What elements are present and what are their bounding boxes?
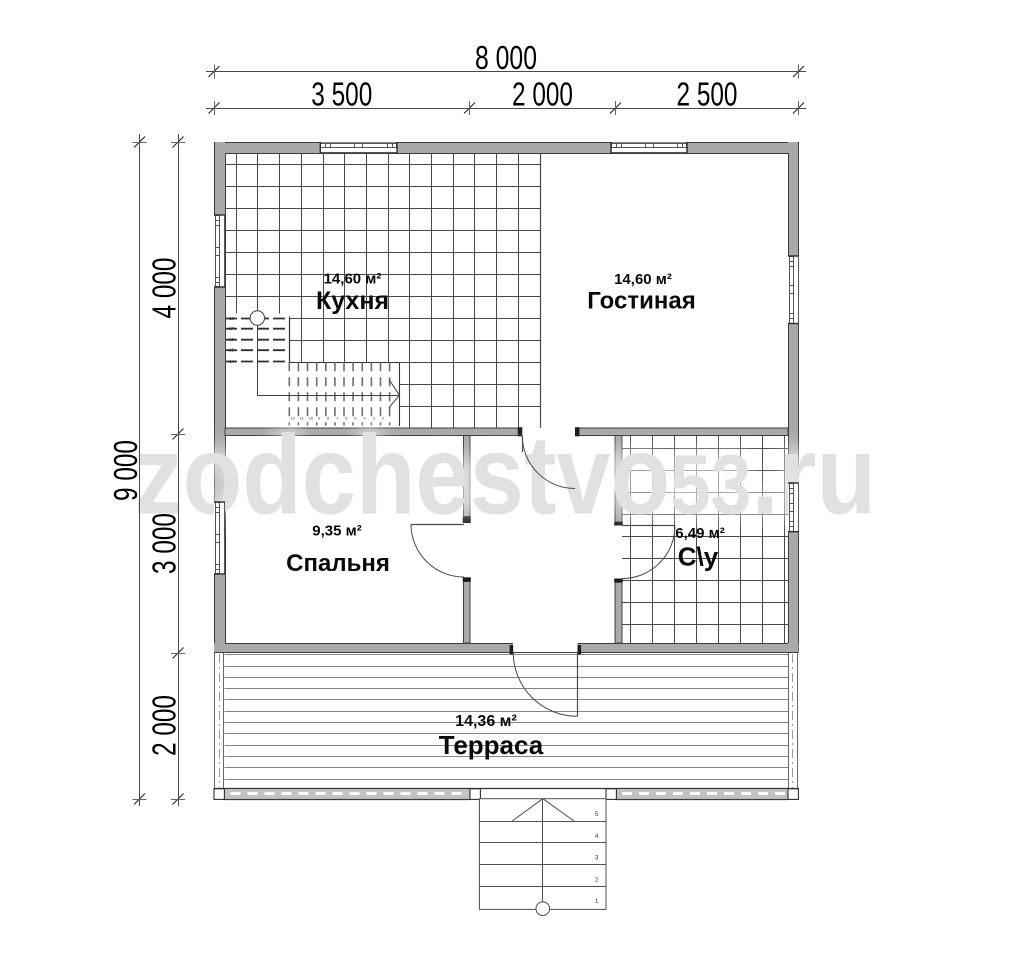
- svg-text:17: 17: [229, 326, 235, 331]
- svg-text:9,35 м²: 9,35 м²: [312, 523, 361, 540]
- svg-text:С\у: С\у: [678, 542, 719, 572]
- svg-text:14,60 м²: 14,60 м²: [614, 271, 672, 288]
- svg-text:9 000: 9 000: [107, 440, 144, 501]
- svg-text:Гостиная: Гостиная: [587, 288, 695, 315]
- svg-text:3 500: 3 500: [311, 76, 372, 113]
- svg-text:18: 18: [229, 316, 235, 321]
- svg-text:zodchestvo53.ru: zodchestvo53.ru: [134, 413, 876, 538]
- svg-text:2 500: 2 500: [677, 76, 738, 113]
- svg-text:14: 14: [229, 359, 235, 364]
- svg-text:6,49 м²: 6,49 м²: [675, 525, 724, 542]
- svg-text:4 000: 4 000: [146, 258, 183, 319]
- svg-text:Спальня: Спальня: [286, 550, 390, 577]
- svg-text:16: 16: [229, 337, 235, 342]
- svg-text:14,60 м²: 14,60 м²: [324, 271, 382, 288]
- svg-text:8 000: 8 000: [475, 39, 537, 76]
- svg-text:Терраса: Терраса: [439, 730, 544, 760]
- svg-text:2 000: 2 000: [146, 695, 183, 756]
- svg-text:3 000: 3 000: [146, 513, 183, 574]
- svg-text:14,36 м²: 14,36 м²: [455, 713, 517, 730]
- svg-text:15: 15: [229, 348, 235, 353]
- svg-text:2 000: 2 000: [512, 76, 573, 113]
- svg-text:Кухня: Кухня: [316, 287, 389, 315]
